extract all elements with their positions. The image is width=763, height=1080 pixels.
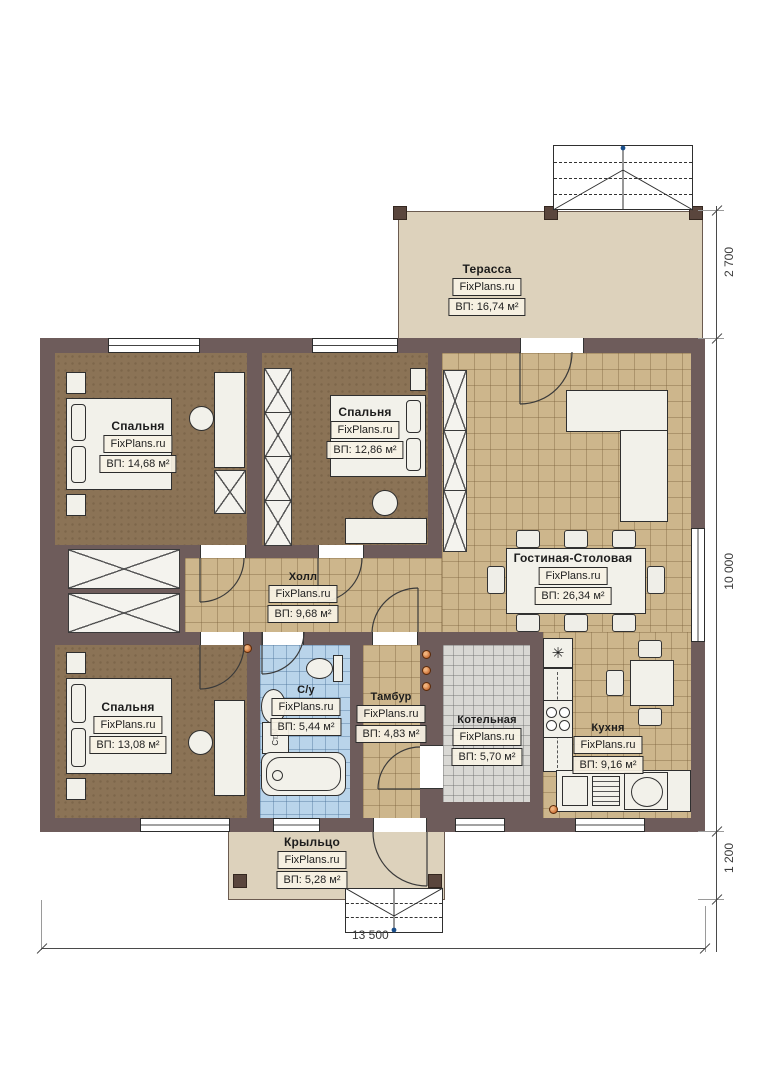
terrace-door-opening [520,338,584,353]
dining-chair [516,614,540,632]
boiler-door-opening [420,745,443,789]
room-label-hall: Холл FixPlans.ru ВП: 9,68 м² [267,571,338,623]
cooker-hood-icon: ✳ [543,638,573,668]
room-label-terrace: Терасса FixPlans.ru ВП: 16,74 м² [448,262,525,316]
vent-marker [422,650,431,659]
room-name: Терасса [463,262,512,276]
wardrobe-column [264,368,290,544]
room-area: ВП: 4,83 м² [355,725,426,743]
stair-tread [346,917,442,918]
kitchen-chair [638,640,662,658]
dimension-porch-depth: 1 200 [722,843,736,873]
brand-watermark: FixPlans.ru [268,585,337,603]
brand-watermark: FixPlans.ru [271,698,340,716]
room-name: Крыльцо [284,835,340,849]
room-name: Спальня [338,405,391,419]
kitchen-window [575,818,645,832]
brand-watermark: FixPlans.ru [277,851,346,869]
pillow [71,728,86,767]
bathroom-window [273,818,320,832]
room-name: Холл [289,571,317,583]
wardrobe [214,470,246,514]
nightstand [66,652,86,674]
dining-chair [564,530,588,548]
nightstand [66,372,86,394]
extension-line [41,900,42,950]
porch-post [233,874,247,888]
room-area: ВП: 14,68 м² [99,455,176,473]
sink-unit [624,772,668,810]
extension-line [698,210,724,211]
dimension-line-bottom [42,948,705,949]
bathtub [261,752,346,796]
stair-tread [554,178,692,179]
room-label-bedroom2: Спальня FixPlans.ru ВП: 12,86 м² [326,405,403,459]
nightstand [66,778,86,800]
pillow [71,446,86,483]
extension-line [698,338,724,339]
vent-marker [549,805,558,814]
floor-plan: Ст.М. ✳ [0,0,763,1080]
room-area: ВП: 9,68 м² [267,605,338,623]
desk [214,372,245,468]
pillow [71,684,86,723]
bedroom1-door-opening [200,545,246,558]
nightstand [66,494,86,516]
room-area: ВП: 5,44 м² [270,718,341,736]
entrance-door-opening [373,818,427,832]
dimension-house-width: 13 500 [352,928,389,942]
terrace-post [393,206,407,220]
desk-chair [189,406,214,431]
pillow [406,438,421,471]
room-label-kitchen: Кухня FixPlans.ru ВП: 9,16 м² [572,722,643,774]
porch-post [428,874,442,888]
dining-chair [612,614,636,632]
stair-tread [554,162,692,163]
brand-watermark: FixPlans.ru [103,435,172,453]
toilet-tank [333,655,343,682]
room-name: Кухня [591,722,624,734]
desk-chair [188,730,213,755]
pillow [406,400,421,433]
room-area: ВП: 12,86 м² [326,441,403,459]
room-label-bathroom: С/у FixPlans.ru ВП: 5,44 м² [270,684,341,736]
kitchen-table [630,660,674,706]
vent-marker [422,682,431,691]
room-area: ВП: 16,74 м² [448,298,525,316]
room-name: Гостиная-Столовая [514,551,633,565]
vent-marker [243,644,252,653]
bedroom2-window [312,338,398,353]
extension-line [698,831,724,832]
desk-chair [372,490,398,516]
room-area: ВП: 26,34 м² [534,587,611,605]
dining-chair [564,614,588,632]
room-name: С/у [297,684,315,696]
dishwasher [592,776,620,806]
room-label-boiler: Котельная FixPlans.ru ВП: 5,70 м² [451,714,522,766]
bedroom3-door-opening [200,632,244,645]
dimension-terrace-depth: 2 700 [722,247,736,277]
dining-chair [612,530,636,548]
brand-watermark: FixPlans.ru [330,421,399,439]
vent-marker [422,666,431,675]
bedroom3-window [140,818,230,832]
room-name: Спальня [101,700,154,714]
hall-closet [68,593,180,633]
terrace-stairs [553,145,693,210]
dining-chair [516,530,540,548]
room-label-bedroom3: Спальня FixPlans.ru ВП: 13,08 м² [89,700,166,754]
living-window [691,528,705,642]
stove [543,700,573,738]
brand-watermark: FixPlans.ru [452,728,521,746]
tambur-door-opening [372,632,418,645]
room-name: Тамбур [370,691,411,703]
dimension-house-depth: 10 000 [722,553,736,590]
stair-tread [346,903,442,904]
dining-chair [487,566,505,594]
room-name: Спальня [111,419,164,433]
toilet-bowl [306,658,333,679]
room-area: ВП: 13,08 м² [89,736,166,754]
extension-line [698,899,724,900]
bedroom1-window [108,338,200,353]
bedroom2-door-opening [318,545,364,558]
dimension-line-right [716,206,717,952]
bathroom-door-opening [262,632,304,645]
boiler-window [455,818,505,832]
wardrobe-column [443,370,465,550]
brand-watermark: FixPlans.ru [452,278,521,296]
brand-watermark: FixPlans.ru [573,736,642,754]
room-area: ВП: 5,70 м² [451,748,522,766]
room-area: ВП: 5,28 м² [276,871,347,889]
room-label-porch: Крыльцо FixPlans.ru ВП: 5,28 м² [276,835,347,889]
fridge [562,776,588,806]
brand-watermark: FixPlans.ru [356,705,425,723]
room-label-living: Гостиная-Столовая FixPlans.ru ВП: 26,34 … [514,551,633,605]
brand-watermark: FixPlans.ru [93,716,162,734]
hall-closet [68,549,180,589]
terrace-floor [398,211,703,338]
nightstand [410,368,426,391]
sofa-seat [620,430,668,522]
brand-watermark: FixPlans.ru [538,567,607,585]
kitchen-chair [606,670,624,696]
room-area: ВП: 9,16 м² [572,756,643,774]
stair-tread [554,194,692,195]
room-label-bedroom1: Спальня FixPlans.ru ВП: 14,68 м² [99,419,176,473]
room-name: Котельная [457,714,516,726]
desk [214,700,245,796]
pillow [71,404,86,441]
porch-stairs [345,888,443,933]
dining-chair [647,566,665,594]
sofa-seat [566,390,668,432]
room-label-tambur: Тамбур FixPlans.ru ВП: 4,83 м² [355,691,426,743]
desk [345,518,427,544]
